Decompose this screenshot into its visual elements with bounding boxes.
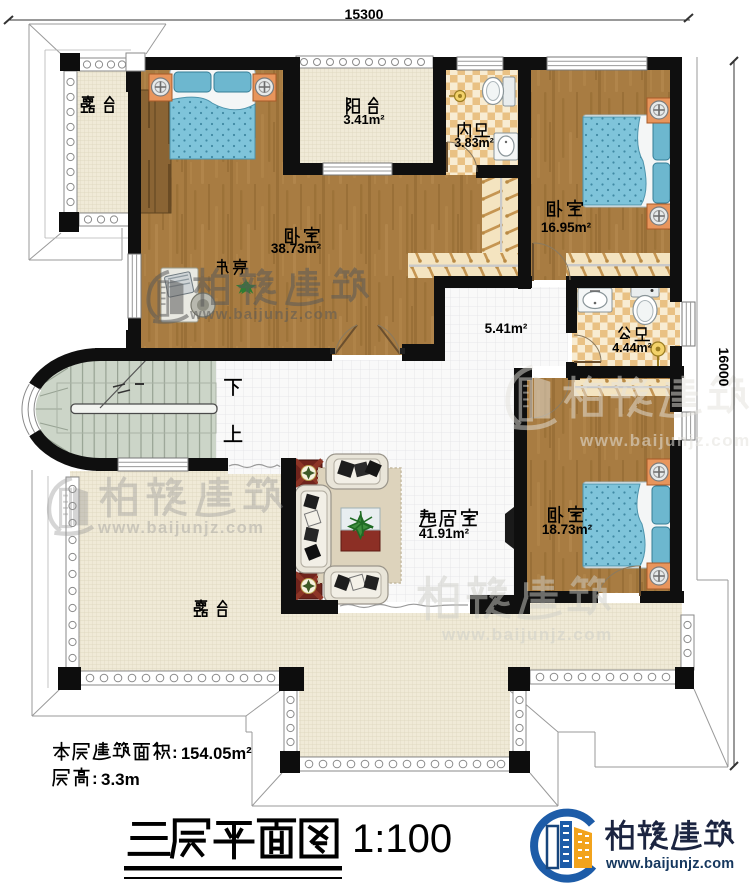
svg-text:38.73m²: 38.73m² bbox=[271, 241, 322, 256]
svg-text:41.91m²: 41.91m² bbox=[419, 526, 470, 541]
svg-text:3.83m²: 3.83m² bbox=[454, 136, 494, 150]
svg-text:16.95m²: 16.95m² bbox=[541, 220, 592, 235]
svg-text:www.baijunjz.com: www.baijunjz.com bbox=[97, 519, 264, 537]
svg-text:4.44m²: 4.44m² bbox=[612, 341, 652, 355]
svg-text::: : bbox=[92, 769, 98, 788]
svg-text:1:100: 1:100 bbox=[352, 817, 452, 861]
svg-text:www.baijunjz.com: www.baijunjz.com bbox=[189, 306, 339, 323]
svg-text::: : bbox=[172, 743, 178, 762]
svg-text:5.41m²: 5.41m² bbox=[485, 321, 528, 336]
svg-text:18.73m²: 18.73m² bbox=[542, 522, 593, 537]
svg-text:16000: 16000 bbox=[716, 348, 732, 387]
svg-text:154.05m²: 154.05m² bbox=[181, 745, 252, 763]
svg-text:www.baijunjz.com: www.baijunjz.com bbox=[579, 431, 750, 450]
svg-text:15300: 15300 bbox=[345, 6, 384, 22]
svg-text:www.baijunjz.com: www.baijunjz.com bbox=[441, 625, 613, 644]
svg-text:3.41m²: 3.41m² bbox=[343, 112, 385, 127]
svg-text:3.3m: 3.3m bbox=[101, 770, 140, 789]
svg-text:www.baijunjz.com: www.baijunjz.com bbox=[605, 856, 734, 872]
